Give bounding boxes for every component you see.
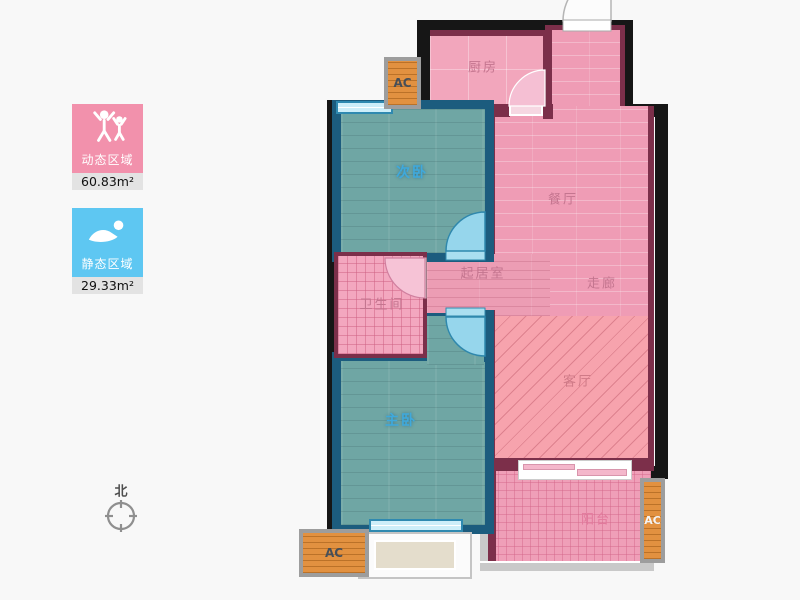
ac-label: AC: [393, 76, 411, 90]
room-label-dining: 餐厅: [548, 189, 578, 208]
master-bedroom-window: [369, 519, 463, 532]
entry-hall-floor: [545, 25, 625, 108]
room-label-corridor: 走廊: [587, 273, 617, 292]
balcony-floor: [490, 468, 651, 563]
legend-static-label: 静态区域: [81, 255, 133, 272]
legend-static-value: 29.33m²: [72, 277, 143, 294]
kitchen-doorway-threshold: [509, 104, 543, 116]
compass-icon: [105, 500, 137, 532]
people-raising-arms-icon: [85, 109, 131, 147]
wall-segment: [543, 104, 553, 119]
legend-dynamic-value: 60.83m²: [72, 173, 143, 190]
room-label-inner-living: 起居室: [460, 263, 505, 282]
ac-label: AC: [644, 514, 661, 527]
wall-segment: [543, 30, 552, 108]
balcony-rail: [480, 561, 654, 571]
wall-segment: [655, 104, 668, 478]
room-label-balcony: 阳台: [581, 509, 611, 528]
room-label-master-bedroom: 主卧: [385, 410, 417, 430]
ac-unit-balcony-side: AC: [640, 478, 665, 563]
room-label-living: 客厅: [563, 371, 593, 390]
master-bedroom-floor: [341, 361, 485, 525]
legend-static-area: 静态区域: [72, 208, 143, 277]
resting-person-icon: [85, 216, 131, 248]
sliding-door-panel: [523, 464, 575, 470]
legend-dynamic-area: 动态区域: [72, 104, 143, 173]
floor-plan-page: 动态区域 60.83m² 静态区域 29.33m²: [0, 0, 800, 600]
entry-door-swing: [563, 0, 611, 21]
ac-label: AC: [325, 546, 343, 560]
compass-north-label: 北: [114, 481, 127, 500]
sliding-door-panel: [577, 469, 627, 476]
master-bedroom-entry-floor: [427, 313, 484, 365]
room-label-second-bedroom: 次卧: [396, 162, 428, 182]
ac-unit-kitchen-side: AC: [384, 57, 421, 109]
wall-segment: [484, 310, 494, 362]
room-label-bathroom: 卫生间: [359, 294, 404, 313]
legend-dynamic-label: 动态区域: [81, 151, 133, 168]
room-label-kitchen: 厨房: [468, 57, 498, 76]
bay-window-sill: [374, 540, 456, 570]
ac-unit-master-side: AC: [299, 529, 369, 577]
